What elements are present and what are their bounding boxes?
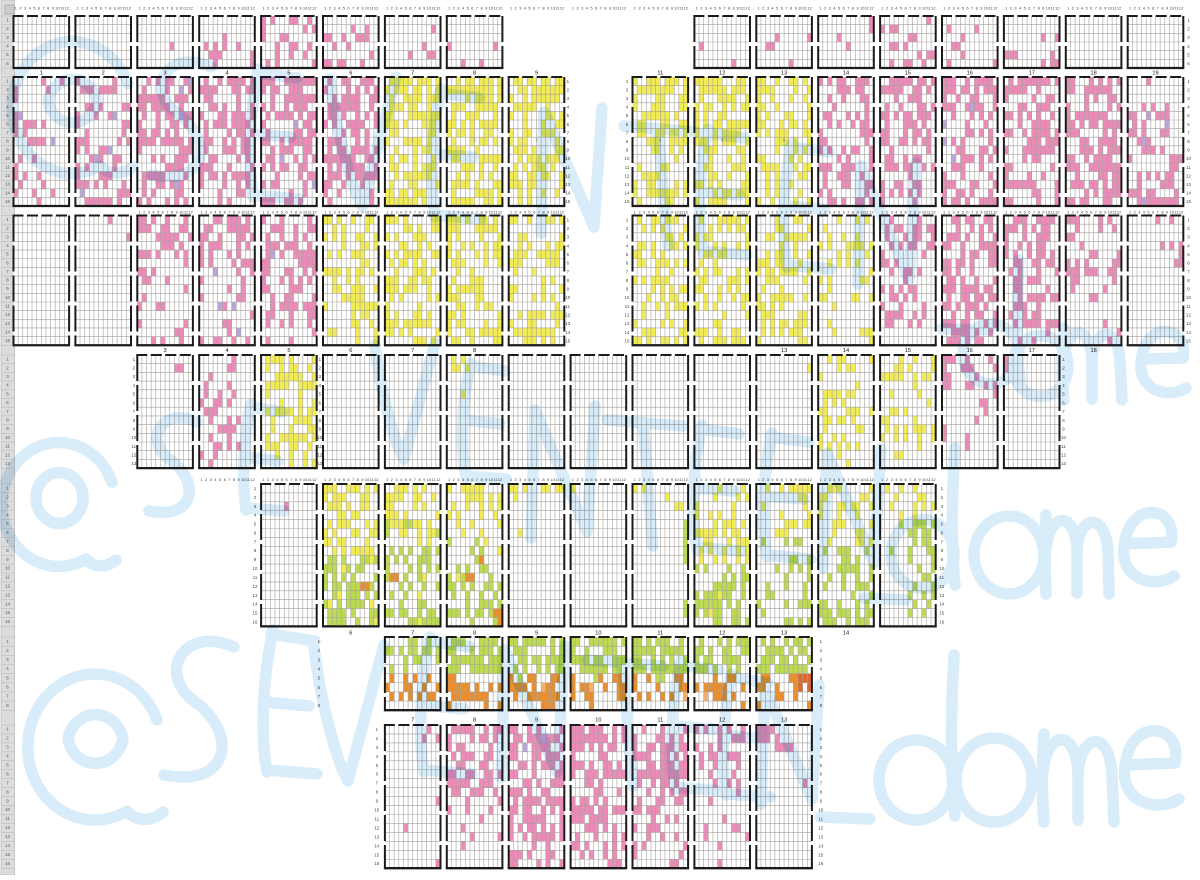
svg-text:14: 14 [939, 602, 944, 607]
svg-text:6: 6 [349, 71, 352, 77]
svg-text:11: 11 [253, 575, 258, 580]
svg-text:14: 14 [818, 843, 823, 848]
svg-text:12: 12 [719, 631, 725, 637]
svg-text:12: 12 [745, 477, 750, 482]
svg-text:15: 15 [565, 199, 570, 204]
svg-text:12: 12 [684, 477, 689, 482]
svg-text:11: 11 [625, 165, 630, 170]
svg-text:6: 6 [349, 631, 352, 637]
svg-text:14: 14 [1186, 191, 1191, 196]
svg-text:12: 12 [5, 452, 10, 457]
svg-text:10: 10 [131, 435, 136, 440]
svg-text:16: 16 [5, 861, 10, 866]
svg-text:13: 13 [781, 348, 787, 354]
svg-text:15: 15 [1186, 199, 1191, 204]
svg-text:12: 12 [5, 312, 10, 317]
svg-text:12: 12 [1061, 453, 1066, 458]
svg-text:11: 11 [566, 304, 571, 309]
svg-text:12: 12 [1055, 6, 1060, 11]
svg-text:14: 14 [5, 601, 10, 606]
svg-text:12: 12 [317, 453, 322, 458]
svg-text:12: 12 [498, 6, 503, 11]
svg-text:10: 10 [565, 295, 570, 300]
svg-text:11: 11 [625, 304, 630, 309]
svg-text:10: 10 [5, 156, 10, 161]
svg-text:10: 10 [5, 435, 10, 440]
svg-text:12: 12 [1179, 6, 1184, 11]
svg-text:10: 10 [253, 566, 258, 571]
svg-text:12: 12 [931, 210, 936, 215]
svg-text:10: 10 [374, 808, 379, 813]
svg-text:15: 15 [905, 348, 911, 354]
svg-text:15: 15 [5, 852, 10, 857]
svg-text:11: 11 [1186, 165, 1191, 170]
svg-text:19: 19 [1152, 71, 1158, 77]
svg-text:12: 12 [993, 210, 998, 215]
svg-text:17: 17 [1029, 348, 1035, 354]
svg-text:14: 14 [565, 191, 570, 196]
svg-text:13: 13 [781, 71, 787, 77]
svg-text:12: 12 [684, 6, 689, 11]
svg-text:10: 10 [5, 295, 10, 300]
svg-text:15: 15 [374, 852, 379, 857]
svg-text:12: 12 [312, 210, 317, 215]
svg-text:12: 12 [188, 210, 193, 215]
svg-text:12: 12 [312, 477, 317, 482]
svg-text:12: 12 [250, 210, 255, 215]
svg-text:3: 3 [164, 348, 167, 354]
svg-text:12: 12 [5, 584, 10, 589]
svg-text:10: 10 [595, 631, 601, 637]
svg-text:1: 1 [40, 71, 43, 77]
svg-text:10: 10 [1186, 295, 1191, 300]
svg-text:12: 12 [1117, 210, 1122, 215]
svg-text:12: 12 [253, 584, 258, 589]
svg-text:9: 9 [535, 71, 538, 77]
svg-text:12: 12 [5, 173, 10, 178]
svg-text:12: 12 [622, 477, 627, 482]
svg-text:14: 14 [843, 348, 849, 354]
svg-text:12: 12 [131, 453, 136, 458]
svg-text:12: 12 [498, 210, 503, 215]
svg-text:12: 12 [374, 6, 379, 11]
svg-text:13: 13 [5, 592, 10, 597]
svg-text:12: 12 [869, 6, 874, 11]
svg-text:4: 4 [225, 71, 228, 77]
svg-text:15: 15 [5, 610, 10, 615]
svg-text:13: 13 [818, 834, 823, 839]
svg-text:2: 2 [102, 71, 105, 77]
svg-text:15: 15 [5, 199, 10, 204]
svg-text:14: 14 [5, 843, 10, 848]
svg-text:12: 12 [1179, 210, 1184, 215]
svg-text:12: 12 [622, 6, 627, 11]
svg-text:12: 12 [312, 6, 317, 11]
svg-text:16: 16 [939, 620, 944, 625]
svg-text:10: 10 [5, 566, 10, 571]
svg-text:12: 12 [126, 6, 131, 11]
svg-text:8: 8 [473, 718, 476, 724]
svg-text:13: 13 [1186, 182, 1191, 187]
svg-text:12: 12 [1186, 313, 1191, 318]
svg-text:8: 8 [473, 71, 476, 77]
svg-text:13: 13 [565, 321, 570, 326]
svg-text:11: 11 [375, 817, 380, 822]
svg-text:8: 8 [473, 631, 476, 637]
svg-text:12: 12 [745, 6, 750, 11]
svg-text:15: 15 [625, 199, 630, 204]
svg-text:17: 17 [1029, 71, 1035, 77]
svg-text:13: 13 [625, 182, 630, 187]
svg-text:15: 15 [5, 338, 10, 343]
svg-text:12: 12 [807, 477, 812, 482]
svg-text:12: 12 [5, 825, 10, 830]
svg-text:13: 13 [939, 593, 944, 598]
svg-text:14: 14 [565, 330, 570, 335]
svg-text:14: 14 [374, 843, 379, 848]
svg-text:13: 13 [253, 593, 258, 598]
svg-text:13: 13 [625, 321, 630, 326]
svg-text:12: 12 [436, 6, 441, 11]
svg-text:12: 12 [1117, 6, 1122, 11]
svg-text:18: 18 [1090, 71, 1096, 77]
svg-text:11: 11 [318, 444, 323, 449]
svg-text:15: 15 [905, 71, 911, 77]
svg-text:12: 12 [625, 173, 630, 178]
svg-text:12: 12 [65, 6, 70, 11]
svg-text:12: 12 [684, 210, 689, 215]
svg-text:15: 15 [565, 338, 570, 343]
svg-text:11: 11 [5, 816, 10, 821]
svg-text:4: 4 [225, 348, 228, 354]
svg-text:8: 8 [473, 348, 476, 354]
svg-text:12: 12 [931, 6, 936, 11]
svg-text:12: 12 [560, 210, 565, 215]
svg-text:15: 15 [253, 611, 258, 616]
svg-text:10: 10 [1061, 435, 1066, 440]
svg-text:13: 13 [5, 321, 10, 326]
svg-text:9: 9 [535, 631, 538, 637]
svg-text:11: 11 [132, 444, 137, 449]
svg-text:12: 12 [374, 825, 379, 830]
svg-text:13: 13 [374, 834, 379, 839]
svg-text:16: 16 [253, 620, 258, 625]
svg-text:5: 5 [287, 348, 290, 354]
svg-text:13: 13 [781, 631, 787, 637]
svg-text:12: 12 [560, 6, 565, 11]
svg-text:12: 12 [1055, 210, 1060, 215]
svg-text:11: 11 [5, 575, 10, 580]
svg-text:14: 14 [5, 190, 10, 195]
svg-text:10: 10 [595, 718, 601, 724]
svg-text:7: 7 [411, 71, 414, 77]
svg-text:15: 15 [625, 338, 630, 343]
svg-text:6: 6 [349, 348, 352, 354]
svg-text:7: 7 [411, 631, 414, 637]
svg-text:13: 13 [131, 461, 136, 466]
svg-text:14: 14 [253, 602, 258, 607]
svg-text:11: 11 [5, 303, 10, 308]
svg-text:12: 12 [807, 6, 812, 11]
svg-text:10: 10 [1186, 156, 1191, 161]
svg-text:12: 12 [436, 477, 441, 482]
svg-text:11: 11 [657, 631, 663, 637]
svg-text:14: 14 [5, 329, 10, 334]
svg-text:15: 15 [818, 852, 823, 857]
svg-text:14: 14 [843, 631, 849, 637]
svg-text:12: 12 [374, 477, 379, 482]
svg-text:10: 10 [5, 807, 10, 812]
svg-text:12: 12 [931, 477, 936, 482]
svg-text:11: 11 [5, 444, 10, 449]
svg-text:11: 11 [5, 164, 10, 169]
svg-text:13: 13 [317, 461, 322, 466]
svg-text:12: 12 [188, 6, 193, 11]
svg-text:16: 16 [5, 619, 10, 624]
svg-text:13: 13 [1061, 461, 1066, 466]
svg-text:12: 12 [745, 210, 750, 215]
svg-text:12: 12 [719, 71, 725, 77]
svg-text:12: 12 [1186, 173, 1191, 178]
svg-text:12: 12 [818, 825, 823, 830]
svg-text:12: 12 [565, 313, 570, 318]
svg-text:16: 16 [818, 861, 823, 866]
svg-text:10: 10 [625, 156, 630, 161]
svg-text:7: 7 [411, 348, 414, 354]
svg-text:7: 7 [411, 718, 414, 724]
svg-text:10: 10 [625, 295, 630, 300]
svg-text:11: 11 [657, 718, 663, 724]
svg-text:14: 14 [625, 330, 630, 335]
svg-text:14: 14 [843, 71, 849, 77]
svg-text:11: 11 [657, 71, 663, 77]
svg-text:15: 15 [939, 611, 944, 616]
svg-text:12: 12 [374, 210, 379, 215]
svg-text:13: 13 [1186, 321, 1191, 326]
svg-text:16: 16 [967, 71, 973, 77]
svg-text:13: 13 [5, 182, 10, 187]
svg-text:12: 12 [250, 477, 255, 482]
svg-text:13: 13 [5, 834, 10, 839]
svg-text:10: 10 [317, 435, 322, 440]
svg-text:12: 12 [993, 6, 998, 11]
svg-text:12: 12 [625, 313, 630, 318]
svg-text:16: 16 [374, 861, 379, 866]
svg-text:14: 14 [625, 191, 630, 196]
svg-text:12: 12 [250, 6, 255, 11]
svg-text:11: 11 [1061, 444, 1066, 449]
svg-text:14: 14 [1186, 330, 1191, 335]
svg-text:11: 11 [1186, 304, 1191, 309]
